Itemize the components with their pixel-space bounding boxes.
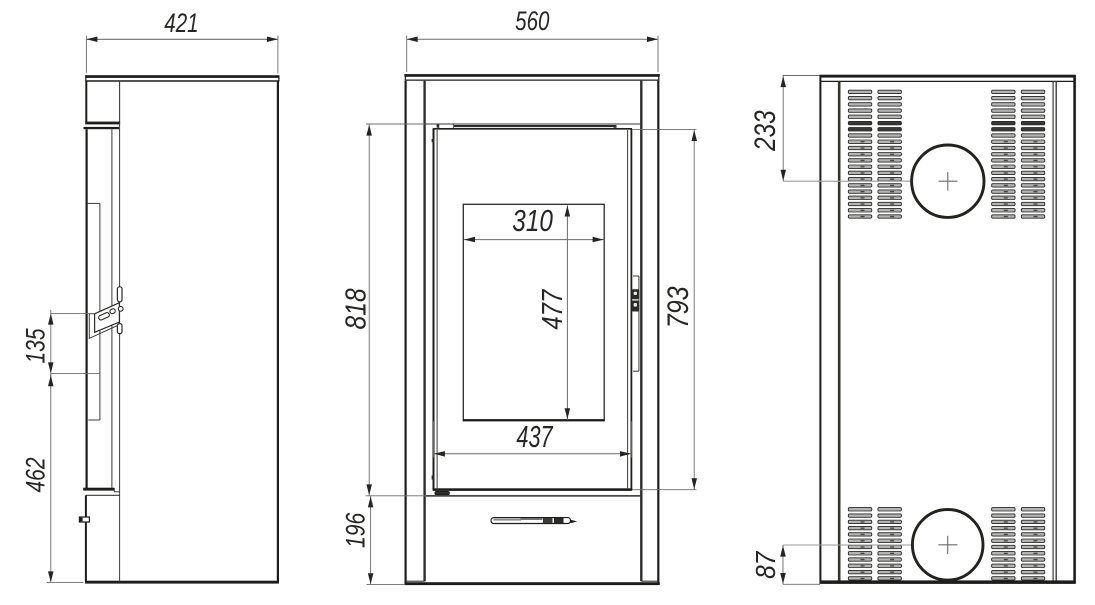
- svg-text:560: 560: [515, 6, 550, 36]
- svg-text:477: 477: [536, 289, 568, 330]
- svg-text:135: 135: [21, 328, 51, 364]
- svg-text:233: 233: [748, 110, 782, 151]
- svg-text:421: 421: [164, 8, 198, 38]
- svg-text:462: 462: [21, 457, 51, 493]
- svg-text:196: 196: [341, 512, 371, 548]
- svg-text:437: 437: [516, 419, 553, 454]
- svg-text:793: 793: [661, 286, 694, 328]
- svg-text:310: 310: [512, 203, 553, 237]
- svg-text:87: 87: [750, 550, 782, 579]
- svg-text:818: 818: [340, 288, 372, 329]
